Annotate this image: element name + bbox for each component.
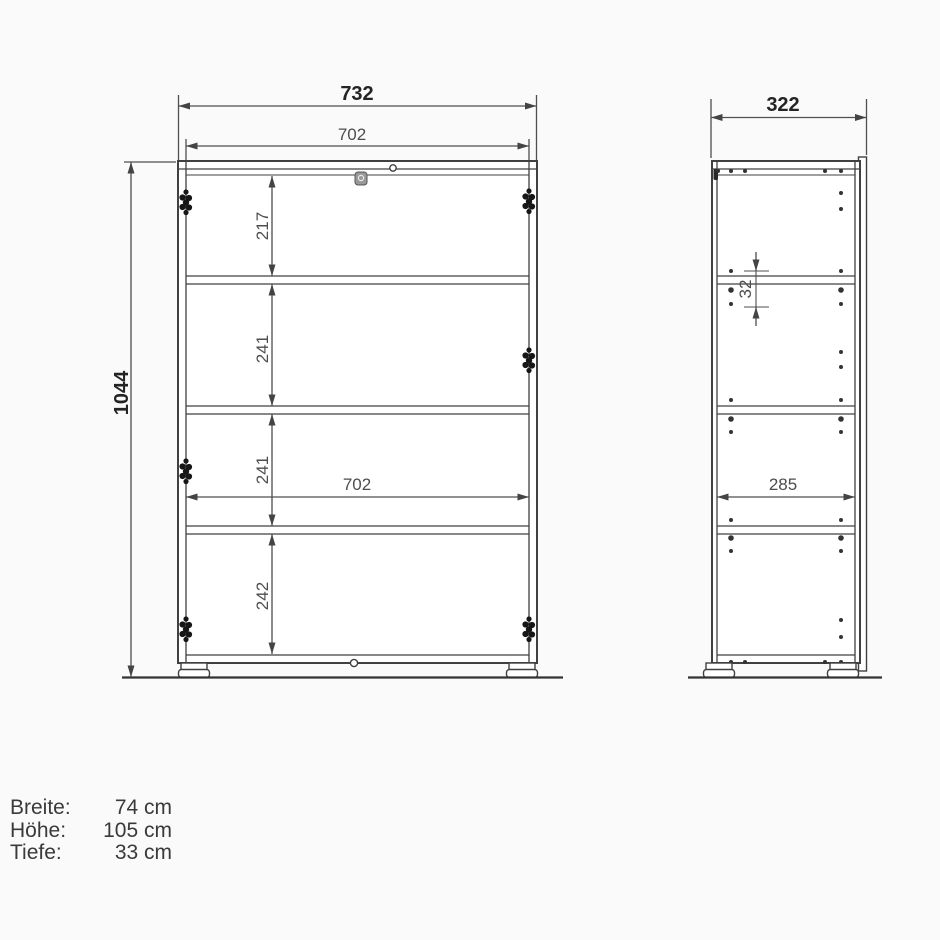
dim-label-side-hole-spacing: 32 xyxy=(736,280,755,299)
dim-label-front-outer-width: 732 xyxy=(340,83,373,105)
dim-label-front-inner-width-mid: 702 xyxy=(343,475,371,494)
side-view xyxy=(688,157,882,678)
bottom-fitting-circle xyxy=(350,659,357,666)
dim-label-section-1: 217 xyxy=(253,212,272,240)
dim-front-outer-height: 1044 xyxy=(111,162,176,677)
dowel-hole-circle xyxy=(390,165,396,171)
summary-label: Tiefe: xyxy=(10,842,102,865)
foot xyxy=(179,663,210,678)
dim-label-side-outer-depth: 322 xyxy=(766,94,799,116)
foot xyxy=(828,663,859,678)
dimensions-summary: Breite: 74 cm Höhe: 105 cm Tiefe: 33 cm xyxy=(10,797,180,865)
dim-label-section-4: 242 xyxy=(253,582,272,610)
front-cabinet-outline xyxy=(178,161,537,663)
summary-row-tiefe: Tiefe: 33 cm xyxy=(10,842,180,865)
dim-label-section-3: 241 xyxy=(253,456,272,484)
summary-row-hoehe: Höhe: 105 cm xyxy=(10,820,180,843)
dim-label-side-inner-depth: 285 xyxy=(769,475,797,494)
foot xyxy=(507,663,538,678)
foot xyxy=(704,663,735,678)
lock-fitting-icon xyxy=(355,172,367,185)
summary-row-breite: Breite: 74 cm xyxy=(10,797,180,820)
furniture-dimension-drawing: 732 702 702 1044 217 241 241 xyxy=(0,0,940,940)
summary-label: Höhe: xyxy=(10,820,102,843)
front-view xyxy=(122,161,563,678)
dim-label-front-inner-width-top: 702 xyxy=(338,125,366,144)
summary-value: 33 cm xyxy=(102,842,172,865)
summary-label: Breite: xyxy=(10,797,102,820)
summary-value: 74 cm xyxy=(102,797,172,820)
dim-side-outer-depth: 322 xyxy=(711,94,867,158)
dim-front-inner-width-top: 702 xyxy=(186,125,529,160)
dim-label-front-outer-height: 1044 xyxy=(111,370,133,415)
side-cabinet-outline xyxy=(712,161,860,663)
dim-label-section-2: 241 xyxy=(253,335,272,363)
dim-front-outer-width: 732 xyxy=(179,83,537,160)
summary-value: 105 cm xyxy=(102,820,172,843)
